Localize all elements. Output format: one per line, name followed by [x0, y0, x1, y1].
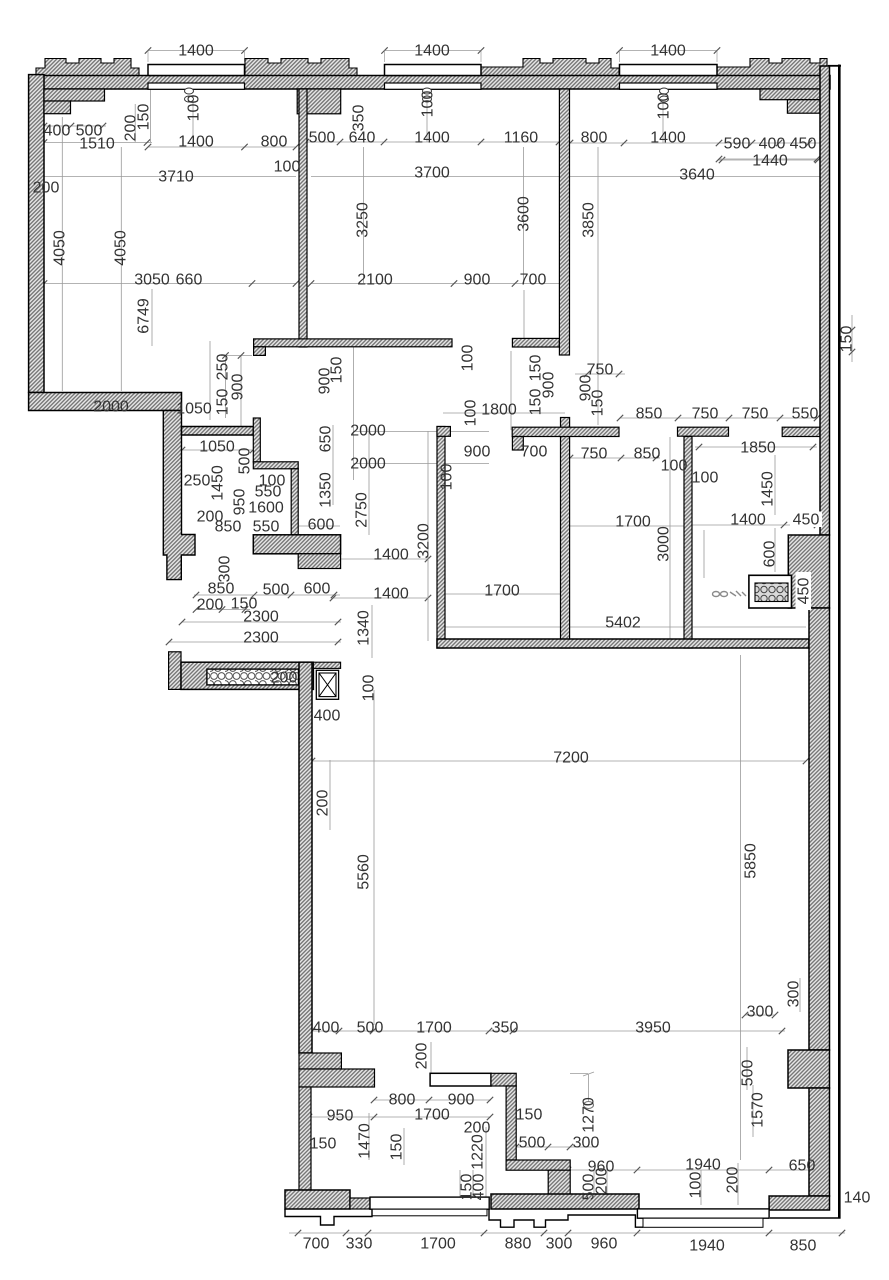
svg-text:750: 750 [692, 406, 719, 423]
svg-text:800: 800 [389, 1092, 416, 1109]
svg-text:1440: 1440 [752, 153, 788, 170]
svg-text:3250: 3250 [355, 202, 372, 238]
svg-text:1400: 1400 [178, 43, 214, 60]
svg-text:700: 700 [520, 272, 547, 289]
svg-text:140: 140 [844, 1190, 871, 1207]
svg-text:1400: 1400 [650, 43, 686, 60]
svg-text:1470: 1470 [357, 1123, 374, 1159]
svg-text:1940: 1940 [685, 1157, 721, 1174]
svg-text:200: 200 [197, 597, 224, 614]
svg-text:100: 100 [361, 675, 378, 702]
svg-text:3710: 3710 [158, 169, 194, 186]
svg-text:500: 500 [519, 1135, 546, 1152]
svg-text:2100: 2100 [357, 272, 393, 289]
svg-text:1570: 1570 [750, 1092, 767, 1128]
svg-text:5402: 5402 [605, 615, 641, 632]
svg-text:960: 960 [591, 1236, 618, 1253]
svg-text:1700: 1700 [484, 583, 520, 600]
svg-text:100: 100 [439, 464, 456, 491]
svg-text:150: 150 [329, 357, 346, 384]
svg-text:5850: 5850 [743, 843, 760, 879]
svg-text:400: 400 [759, 136, 786, 153]
svg-text:2000: 2000 [93, 399, 129, 416]
svg-text:150: 150 [839, 326, 856, 353]
svg-text:1600: 1600 [248, 500, 284, 517]
svg-text:750: 750 [742, 406, 769, 423]
svg-text:700: 700 [303, 1236, 330, 1253]
svg-text:550: 550 [253, 519, 280, 536]
svg-text:500: 500 [740, 1060, 757, 1087]
svg-text:1700: 1700 [615, 514, 651, 531]
svg-text:100: 100 [656, 93, 673, 120]
svg-text:300: 300 [786, 981, 803, 1008]
svg-text:1400: 1400 [373, 547, 409, 564]
svg-text:100: 100 [420, 91, 437, 118]
svg-text:850: 850 [634, 446, 661, 463]
svg-text:600: 600 [304, 581, 331, 598]
svg-text:300: 300 [573, 1135, 600, 1152]
svg-text:650: 650 [318, 426, 335, 453]
svg-text:960: 960 [588, 1159, 615, 1176]
svg-text:880: 880 [505, 1236, 532, 1253]
svg-text:4050: 4050 [113, 230, 130, 266]
svg-text:1340: 1340 [356, 610, 373, 646]
svg-text:450: 450 [790, 136, 817, 153]
svg-text:2000: 2000 [350, 456, 386, 473]
svg-text:800: 800 [261, 134, 288, 151]
svg-text:1400: 1400 [650, 130, 686, 147]
svg-text:1400: 1400 [730, 512, 766, 529]
svg-text:150: 150 [528, 389, 545, 416]
svg-text:650: 650 [789, 1158, 816, 1175]
svg-text:400: 400 [44, 123, 71, 140]
svg-text:800: 800 [581, 130, 608, 147]
svg-text:1400: 1400 [373, 586, 409, 603]
svg-text:1350: 1350 [318, 472, 335, 508]
svg-text:150: 150 [590, 390, 607, 417]
svg-text:150: 150 [459, 1174, 476, 1201]
svg-text:1400: 1400 [178, 134, 214, 151]
svg-text:450: 450 [793, 512, 820, 529]
svg-text:2000: 2000 [350, 423, 386, 440]
svg-text:200: 200 [414, 1043, 431, 1070]
svg-text:1700: 1700 [420, 1236, 456, 1253]
svg-text:350: 350 [351, 105, 368, 132]
svg-text:150: 150 [516, 1107, 543, 1124]
svg-text:950: 950 [232, 489, 249, 516]
svg-text:3600: 3600 [516, 196, 533, 232]
svg-text:100: 100 [688, 1172, 705, 1199]
svg-text:300: 300 [747, 1004, 774, 1021]
svg-text:850: 850 [636, 406, 663, 423]
svg-text:1450: 1450 [760, 471, 777, 507]
svg-text:3950: 3950 [635, 1020, 671, 1037]
svg-text:100: 100 [186, 95, 203, 122]
svg-text:550: 550 [792, 406, 819, 423]
svg-text:700: 700 [521, 444, 548, 461]
svg-text:100: 100 [274, 159, 301, 176]
svg-text:750: 750 [581, 446, 608, 463]
svg-text:350: 350 [492, 1020, 519, 1037]
svg-text:2300: 2300 [243, 630, 279, 647]
svg-text:150: 150 [215, 389, 232, 416]
svg-text:500: 500 [263, 582, 290, 599]
svg-text:750: 750 [587, 362, 614, 379]
svg-text:1270: 1270 [581, 1097, 598, 1133]
svg-text:4050: 4050 [52, 230, 69, 266]
svg-text:3200: 3200 [416, 523, 433, 559]
svg-text:3050: 3050 [134, 272, 170, 289]
svg-text:660: 660 [176, 272, 203, 289]
svg-text:600: 600 [308, 517, 335, 534]
svg-text:900: 900 [230, 374, 247, 401]
svg-text:200: 200 [315, 790, 332, 817]
svg-text:900: 900 [464, 444, 491, 461]
svg-text:5560: 5560 [356, 854, 373, 890]
svg-text:950: 950 [327, 1108, 354, 1125]
svg-text:2300: 2300 [243, 609, 279, 626]
svg-text:150: 150 [389, 1134, 406, 1161]
svg-text:850: 850 [790, 1238, 817, 1255]
svg-text:500: 500 [309, 130, 336, 147]
svg-text:330: 330 [346, 1236, 373, 1253]
svg-text:200: 200 [33, 180, 60, 197]
svg-text:1510: 1510 [79, 136, 115, 153]
svg-text:3850: 3850 [581, 202, 598, 238]
svg-text:900: 900 [464, 272, 491, 289]
svg-text:600: 600 [762, 541, 779, 568]
svg-text:1850: 1850 [740, 440, 776, 457]
svg-text:300: 300 [546, 1236, 573, 1253]
svg-text:1700: 1700 [416, 1020, 452, 1037]
svg-text:1400: 1400 [414, 130, 450, 147]
svg-text:100: 100 [692, 470, 719, 487]
svg-text:1700: 1700 [414, 1107, 450, 1124]
svg-text:200: 200 [464, 1120, 491, 1137]
svg-text:590: 590 [724, 136, 751, 153]
svg-text:6749: 6749 [136, 298, 153, 334]
svg-text:150: 150 [310, 1136, 337, 1153]
svg-text:550: 550 [255, 484, 282, 501]
svg-text:1940: 1940 [689, 1238, 725, 1255]
svg-text:3640: 3640 [679, 167, 715, 184]
svg-text:1050: 1050 [199, 439, 235, 456]
svg-text:400: 400 [314, 708, 341, 725]
svg-text:300: 300 [217, 556, 234, 583]
svg-text:2750: 2750 [354, 492, 371, 528]
svg-text:450: 450 [796, 578, 813, 605]
svg-text:1160: 1160 [504, 130, 539, 147]
svg-text:900: 900 [448, 1092, 475, 1109]
svg-text:500: 500 [237, 448, 254, 475]
svg-text:7200: 7200 [553, 750, 589, 767]
svg-text:850: 850 [215, 519, 242, 536]
svg-text:1800: 1800 [481, 402, 517, 419]
svg-text:100: 100 [460, 345, 477, 372]
svg-text:200: 200 [271, 670, 298, 687]
svg-text:200: 200 [725, 1167, 742, 1194]
svg-text:3700: 3700 [414, 165, 450, 182]
svg-text:400: 400 [313, 1020, 340, 1037]
svg-text:1220: 1220 [470, 1134, 487, 1170]
svg-text:100: 100 [463, 400, 480, 427]
svg-text:1050: 1050 [176, 401, 212, 418]
svg-text:100: 100 [661, 458, 688, 475]
svg-text:1400: 1400 [414, 43, 450, 60]
svg-text:150: 150 [136, 104, 153, 131]
svg-text:500: 500 [357, 1020, 384, 1037]
svg-text:250: 250 [184, 473, 211, 490]
svg-text:1450: 1450 [210, 465, 227, 501]
svg-text:3000: 3000 [656, 526, 673, 562]
